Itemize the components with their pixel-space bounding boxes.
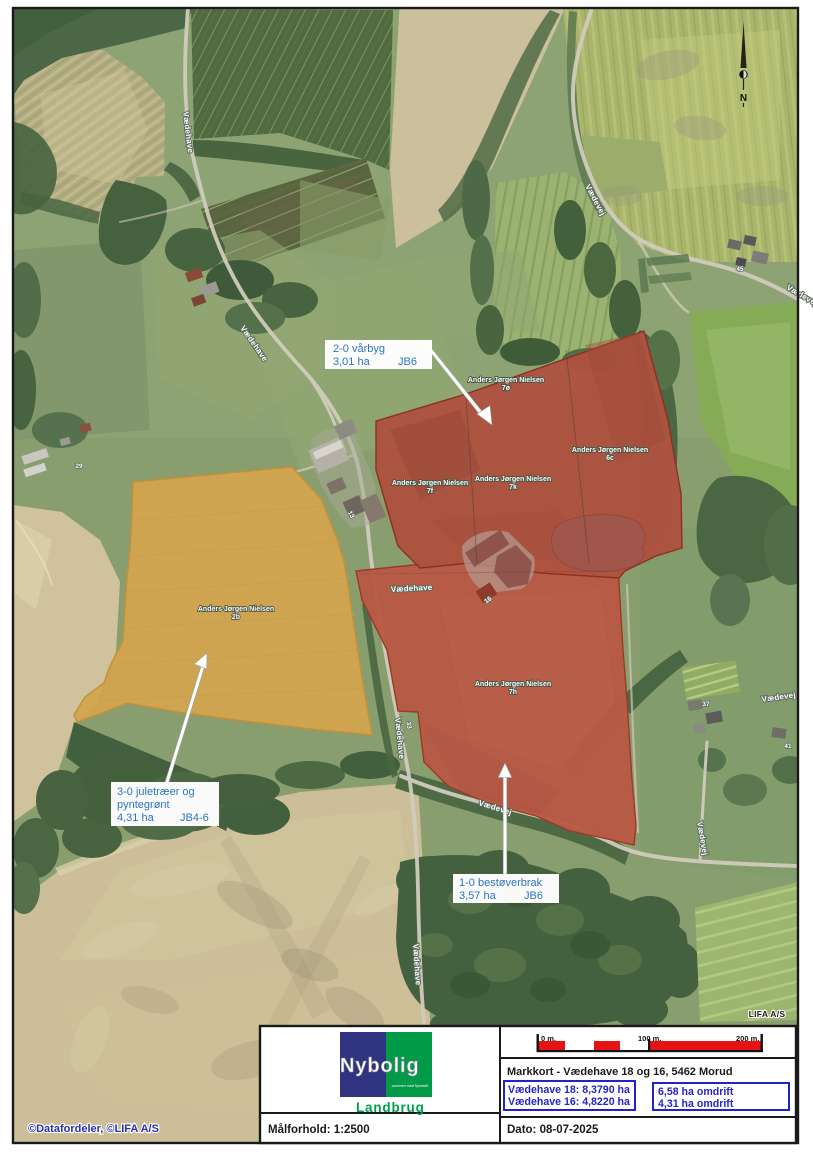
svg-text:4,31 ha: 4,31 ha: [117, 812, 155, 824]
svg-text:N: N: [740, 93, 747, 104]
svg-text:3,57 ha: 3,57 ha: [459, 890, 497, 902]
svg-text:7ø: 7ø: [502, 385, 511, 392]
svg-text:37: 37: [702, 701, 710, 708]
svg-text:7f: 7f: [427, 488, 434, 495]
svg-text:1-0 bestøverbrak: 1-0 bestøverbrak: [459, 877, 543, 889]
svg-text:7h: 7h: [509, 689, 517, 696]
svg-text:100 m.: 100 m.: [638, 1034, 661, 1043]
svg-text:200 m.: 200 m.: [736, 1034, 759, 1043]
svg-text:JB6: JB6: [524, 890, 543, 902]
svg-text:JB6: JB6: [398, 356, 417, 368]
svg-text:Landbrug: Landbrug: [356, 1100, 425, 1115]
svg-text:Anders Jørgen Nielsen: Anders Jørgen Nielsen: [198, 606, 274, 613]
svg-text:Dato: 08-07-2025: Dato: 08-07-2025: [507, 1124, 599, 1136]
svg-text:7k: 7k: [509, 484, 517, 491]
svg-text:3,01 ha: 3,01 ha: [333, 356, 371, 368]
svg-text:LIFA A/S: LIFA A/S: [749, 1009, 786, 1019]
svg-text:3-0 juletræer og: 3-0 juletræer og: [117, 786, 195, 798]
svg-text:JB4-6: JB4-6: [180, 812, 209, 824]
svg-text:Anders Jørgen Nielsen: Anders Jørgen Nielsen: [475, 476, 551, 483]
svg-text:0 m.: 0 m.: [541, 1034, 556, 1043]
svg-text:2-0 vårbyg: 2-0 vårbyg: [333, 343, 385, 355]
svg-text:Vædehave 16: 4,8220 ha: Vædehave 16: 4,8220 ha: [508, 1096, 630, 1108]
svg-text:..sammen med Nykredit: ..sammen med Nykredit: [390, 1084, 429, 1088]
svg-text:Målforhold: 1:2500: Målforhold: 1:2500: [268, 1124, 370, 1136]
svg-text:Nybolig: Nybolig: [340, 1055, 420, 1077]
svg-text:Anders Jørgen Nielsen: Anders Jørgen Nielsen: [468, 377, 544, 384]
svg-text:Anders Jørgen Nielsen: Anders Jørgen Nielsen: [572, 447, 648, 454]
svg-text:©Datafordeler, ©LIFA A/S: ©Datafordeler, ©LIFA A/S: [28, 1123, 159, 1135]
svg-text:pyntegrønt: pyntegrønt: [117, 799, 170, 811]
svg-text:Vædehave 18: 8,3790 ha: Vædehave 18: 8,3790 ha: [508, 1084, 630, 1096]
svg-text:Anders Jørgen Nielsen: Anders Jørgen Nielsen: [392, 480, 468, 487]
svg-text:Anders Jørgen Nielsen: Anders Jørgen Nielsen: [475, 681, 551, 688]
svg-text:6c: 6c: [606, 455, 614, 462]
svg-text:41: 41: [784, 743, 792, 750]
svg-text:Markkort - Vædehave 18 og 16,: Markkort - Vædehave 18 og 16, 5462 Morud: [507, 1066, 733, 1078]
svg-text:6,58 ha omdrift: 6,58 ha omdrift: [658, 1086, 734, 1098]
svg-text:2b: 2b: [232, 614, 240, 621]
svg-text:29: 29: [75, 463, 83, 470]
svg-text:45: 45: [736, 266, 744, 273]
svg-text:4,31 ha omdrift: 4,31 ha omdrift: [658, 1098, 734, 1110]
